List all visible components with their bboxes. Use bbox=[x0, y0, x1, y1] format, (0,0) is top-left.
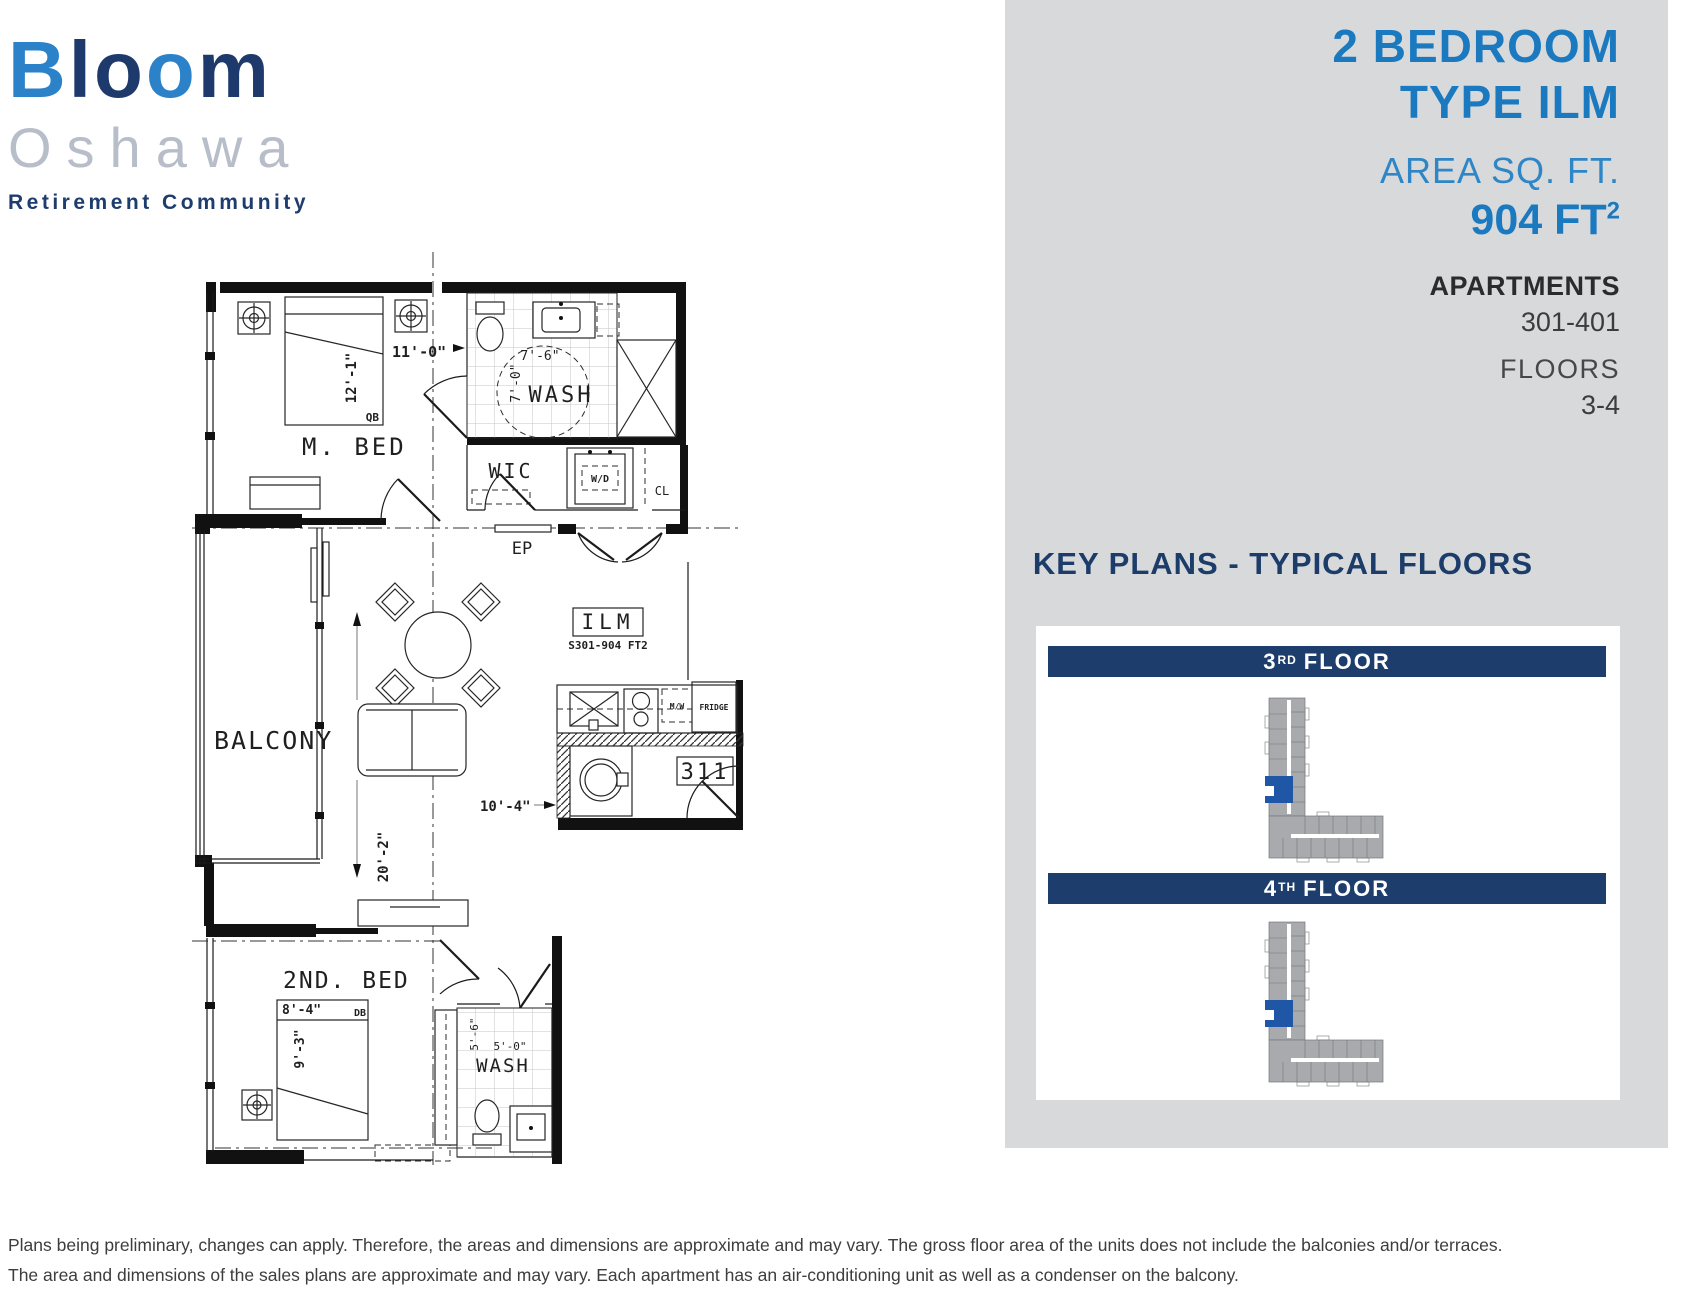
chair bbox=[376, 669, 414, 707]
door-arc bbox=[440, 979, 479, 994]
logo-letter-m: m bbox=[198, 25, 272, 114]
microwave-icon: M/W bbox=[662, 689, 692, 722]
electrical-panel: EP bbox=[495, 525, 551, 559]
door-leaf bbox=[424, 394, 467, 438]
logo-letter-b: B bbox=[8, 25, 69, 114]
living-width-dim: 10'-4" bbox=[480, 799, 556, 815]
area-number: 904 FT bbox=[1470, 196, 1606, 244]
master-bed-label: M. BED bbox=[302, 433, 407, 461]
hall-closet: CL bbox=[645, 448, 669, 508]
disclaimer-line2: The area and dimensions of the sales pla… bbox=[8, 1260, 1568, 1290]
chair bbox=[462, 669, 500, 707]
floors-label: FLOORS bbox=[1060, 354, 1620, 385]
bath-label: WASH bbox=[529, 383, 594, 408]
door-arc bbox=[381, 479, 398, 521]
floor-number: 3 bbox=[1263, 649, 1277, 675]
logo-wordmark: Bloom bbox=[8, 24, 428, 116]
unit-area-code: S301-904 FT2 bbox=[568, 639, 647, 652]
bed-type-db: DB bbox=[354, 1008, 366, 1019]
kitchen-sink-icon bbox=[570, 692, 618, 730]
dim-arrow bbox=[453, 344, 465, 352]
disclaimer-line1: Plans being preliminary, changes can app… bbox=[8, 1230, 1568, 1260]
second-bed-width-dim: 8'-4" bbox=[282, 1003, 321, 1018]
living-length-text: 20'-2" bbox=[376, 832, 392, 883]
logo-letters-lo: lo bbox=[69, 25, 146, 114]
floor-bar-4th: 4THFLOOR bbox=[1048, 873, 1606, 904]
kitchen: M/W FRIDGE bbox=[557, 682, 743, 818]
bath2-width-dim: 5'-0" bbox=[493, 1040, 526, 1053]
area-label: AREA SQ. FT. bbox=[1060, 150, 1620, 192]
highlighted-unit bbox=[1265, 776, 1293, 803]
unit-summary: 2 BEDROOM TYPE ILM AREA SQ. FT. 904 FT2 … bbox=[1060, 18, 1620, 421]
master-bed-length-dim: 12'-1" bbox=[344, 353, 360, 404]
bathroom-2: WASH 5'-6" 5'-0" bbox=[457, 964, 552, 1157]
dresser bbox=[250, 477, 320, 509]
bed-type-qb: QB bbox=[366, 411, 380, 424]
second-bed-length-dim: 9'-3" bbox=[293, 1029, 308, 1068]
balcony-slider-door bbox=[311, 542, 329, 602]
master-bedroom: 12'-1" QB 11'-0" M. BED bbox=[238, 297, 465, 521]
ceiling-light-icon bbox=[238, 302, 270, 334]
master-bed-width-dim: 11'-0" bbox=[392, 343, 446, 361]
queen-bed bbox=[285, 297, 383, 425]
ceiling-light-icon bbox=[242, 1090, 272, 1120]
balcony: BALCONY bbox=[196, 528, 333, 863]
double-bed bbox=[277, 1000, 368, 1140]
linen-closet bbox=[435, 1010, 457, 1145]
brochure-page: Bloom Oshawa Retirement Community 2 BEDR… bbox=[0, 0, 1690, 1306]
key-plans-title: KEY PLANS - TYPICAL FLOORS bbox=[1008, 546, 1558, 582]
chair bbox=[376, 583, 414, 621]
logo-tagline: Retirement Community bbox=[8, 191, 428, 215]
unit-number-tag: 311 bbox=[677, 757, 733, 785]
entry-double-door bbox=[578, 533, 662, 562]
bath2-length-dim: 5'-6" bbox=[468, 1017, 481, 1050]
floor-word: FLOOR bbox=[1303, 876, 1390, 902]
bathroom-1: WASH 7'-6" 7'-0" bbox=[424, 293, 676, 438]
unit-type-label: ILM bbox=[582, 610, 635, 634]
toilet-icon bbox=[473, 1100, 501, 1145]
door-arc bbox=[498, 968, 520, 1008]
laundry-label: W/D bbox=[591, 474, 609, 485]
apartments-label: APARTMENTS bbox=[1060, 271, 1620, 302]
floor-suffix: TH bbox=[1278, 880, 1296, 894]
floor-suffix: RD bbox=[1277, 653, 1296, 667]
bath-width-dim: 7'-6" bbox=[520, 349, 559, 364]
fridge-icon: FRIDGE bbox=[692, 682, 736, 732]
unit-tag: ILM S301-904 FT2 bbox=[568, 608, 647, 652]
disclaimer: Plans being preliminary, changes can app… bbox=[8, 1230, 1568, 1290]
door-leaf bbox=[398, 479, 440, 521]
floor-bar-3rd: 3RDFLOOR bbox=[1048, 646, 1606, 677]
kitchen-wall-hatch bbox=[557, 746, 570, 818]
unit-title: 2 BEDROOM TYPE ILM bbox=[1060, 18, 1620, 130]
area-superscript: 2 bbox=[1607, 198, 1620, 225]
door-leaf bbox=[440, 940, 479, 979]
floor-plan-drawing: BALCONY 12'-1" QB bbox=[190, 252, 750, 1167]
fridge-label: FRIDGE bbox=[700, 703, 729, 712]
microwave-label: M/W bbox=[670, 702, 685, 711]
bath-length-dim: 7'-0" bbox=[509, 363, 524, 402]
second-bed-label: 2ND. BED bbox=[283, 968, 410, 994]
wic: WIC bbox=[467, 445, 535, 510]
sofa bbox=[358, 704, 466, 776]
key-plan-3rd-floor bbox=[1263, 696, 1391, 864]
kitchen-wall-hatch bbox=[557, 733, 743, 746]
bloom-logo: Bloom Oshawa Retirement Community bbox=[8, 24, 428, 215]
floor-number: 4 bbox=[1264, 876, 1278, 902]
floors-value: 3-4 bbox=[1060, 390, 1620, 421]
floor-word: FLOOR bbox=[1304, 649, 1391, 675]
bath2-label: WASH bbox=[476, 1055, 530, 1077]
balcony-label: BALCONY bbox=[214, 726, 333, 755]
key-plan-4th-floor bbox=[1263, 920, 1391, 1088]
living-width-text: 10'-4" bbox=[480, 799, 531, 815]
closet-label: CL bbox=[655, 484, 669, 498]
vanity-sink-icon bbox=[533, 302, 595, 338]
chair bbox=[462, 583, 500, 621]
cooktop-icon bbox=[624, 689, 658, 733]
media-console bbox=[358, 900, 468, 926]
unit-number-text: 311 bbox=[681, 760, 730, 785]
logo-letter-o: o bbox=[146, 25, 198, 114]
unit-title-line1: 2 BEDROOM bbox=[1060, 18, 1620, 74]
key-plans-box: 3RDFLOOR bbox=[1036, 626, 1620, 1100]
apartments-value: 301-401 bbox=[1060, 307, 1620, 338]
logo-city: Oshawa bbox=[8, 118, 428, 178]
laundry-closet: W/D bbox=[567, 448, 633, 508]
panel-label: EP bbox=[512, 539, 532, 559]
wardrobe bbox=[375, 1145, 450, 1161]
toilet-icon bbox=[476, 302, 504, 351]
shower-icon bbox=[617, 340, 676, 437]
door-leaf bbox=[520, 964, 550, 1008]
second-bedroom: 2ND. BED 8'-4" DB 9'-3" bbox=[242, 900, 479, 1161]
building-key-plan bbox=[1265, 698, 1383, 862]
unit-title-line2: TYPE ILM bbox=[1060, 74, 1620, 130]
door-arc bbox=[424, 376, 467, 394]
area-value: 904 FT2 bbox=[1060, 196, 1620, 245]
door-leaf bbox=[702, 781, 739, 818]
vanity-sink-icon bbox=[510, 1106, 552, 1152]
ceiling-light-icon bbox=[395, 300, 427, 332]
dining-set bbox=[376, 583, 500, 707]
